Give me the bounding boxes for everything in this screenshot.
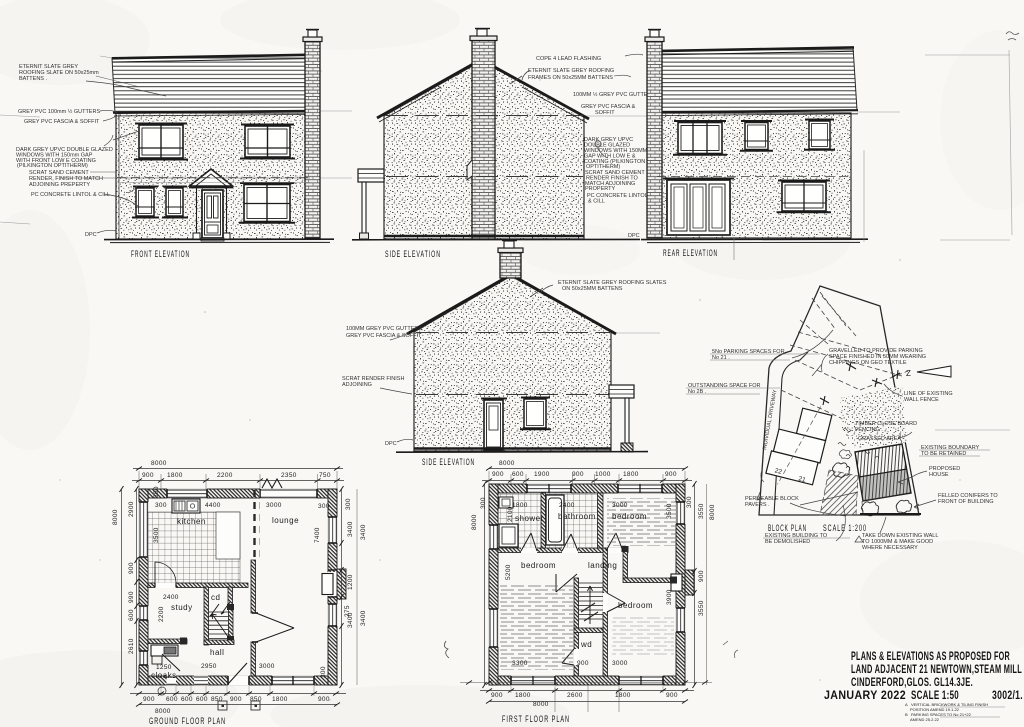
svg-text:300: 300 — [480, 497, 487, 509]
svg-text:300: 300 — [318, 503, 330, 510]
svg-text:DPC: DPC — [85, 232, 97, 238]
svg-text:LAND ADJACENT 21 NEWTOWN,STEAM: LAND ADJACENT 21 NEWTOWN,STEAM MILL — [851, 664, 1022, 676]
svg-text:2100: 2100 — [507, 506, 514, 522]
svg-text:cd: cd — [211, 593, 220, 602]
svg-text:kitchen: kitchen — [177, 517, 206, 526]
svg-text:GREY PVC FASCIA & SOFFIT: GREY PVC FASCIA & SOFFIT — [24, 119, 100, 125]
svg-text:3900: 3900 — [666, 589, 673, 605]
svg-text:900: 900 — [698, 570, 705, 582]
svg-text:600: 600 — [128, 609, 135, 621]
svg-text:3500: 3500 — [153, 527, 160, 543]
svg-text:2400: 2400 — [559, 502, 575, 509]
svg-text:ETERNIT SLATE GREY ROOFING: ETERNIT SLATE GREY ROOFING — [528, 68, 614, 74]
svg-text:ADJOINING PREPERTY: ADJOINING PREPERTY — [29, 182, 90, 188]
svg-text:300: 300 — [153, 486, 160, 498]
svg-text:850: 850 — [211, 696, 223, 703]
svg-text:1800: 1800 — [272, 696, 288, 703]
svg-text:1250: 1250 — [156, 664, 172, 671]
svg-text:JANUARY 2022: JANUARY 2022 — [824, 690, 906, 702]
svg-text:900: 900 — [142, 472, 154, 479]
svg-text:wd: wd — [580, 640, 592, 649]
svg-text:3400: 3400 — [347, 521, 354, 537]
svg-text:1900: 1900 — [534, 471, 550, 478]
svg-text:BE DEMOLISHED: BE DEMOLISHED — [765, 539, 810, 545]
svg-text:2600: 2600 — [567, 692, 583, 699]
svg-text:2350: 2350 — [281, 472, 297, 479]
svg-text:600: 600 — [166, 696, 178, 703]
svg-text:WALL FENCE: WALL FENCE — [904, 397, 939, 403]
svg-text:COPE 4 LEAD FLASHING: COPE 4 LEAD FLASHING — [536, 56, 601, 62]
svg-text:HOUSE: HOUSE — [929, 472, 949, 478]
svg-text:bathroom: bathroom — [558, 512, 596, 521]
svg-text:PAVERS .: PAVERS . — [745, 502, 770, 508]
svg-text:900: 900 — [143, 696, 155, 703]
svg-text:900: 900 — [666, 692, 678, 699]
svg-text:900: 900 — [577, 660, 589, 667]
svg-text:3000: 3000 — [612, 502, 628, 509]
svg-text:3550: 3550 — [698, 503, 705, 519]
svg-text:300: 300 — [686, 496, 693, 508]
svg-text:3000: 3000 — [266, 502, 282, 509]
svg-text:3002/1.: 3002/1. — [992, 690, 1023, 702]
svg-text:3400: 3400 — [347, 612, 354, 628]
svg-text:2400: 2400 — [163, 594, 179, 601]
svg-text:FIRST FLOOR PLAN: FIRST FLOOR PLAN — [502, 714, 570, 724]
svg-text:bedroom: bedroom — [612, 512, 647, 521]
svg-text:GROUND FLOOR PLAN: GROUND FLOOR PLAN — [149, 716, 226, 726]
svg-text:8000: 8000 — [709, 504, 716, 520]
svg-text:landing: landing — [588, 561, 617, 570]
svg-text:PROPERTY: PROPERTY — [585, 186, 615, 192]
svg-text:300: 300 — [345, 498, 352, 510]
svg-text:CHIPPINGS ON GEO TEXTILE: CHIPPINGS ON GEO TEXTILE — [829, 360, 907, 366]
svg-text:2950: 2950 — [201, 663, 217, 670]
svg-text:BATTENS .: BATTENS . — [19, 76, 47, 82]
svg-text:900: 900 — [665, 471, 677, 478]
svg-text:3300: 3300 — [512, 660, 528, 667]
svg-text:GREY PVC FASCIA & SOFFIT: GREY PVC FASCIA & SOFFIT — [346, 333, 422, 339]
svg-text:ON 50x25MM BATTENS: ON 50x25MM BATTENS — [562, 286, 623, 292]
svg-text:hall: hall — [210, 648, 224, 657]
svg-text:3000: 3000 — [259, 663, 275, 670]
svg-text:(PILKINGTON OPTITHERM): (PILKINGTON OPTITHERM) — [17, 163, 88, 169]
svg-text:bedroom: bedroom — [618, 601, 653, 610]
svg-text:FRAMES ON 50x25MM BATTENS: FRAMES ON 50x25MM BATTENS — [528, 75, 613, 81]
svg-text:GREY PVC 100mm ½ GUTTERS: GREY PVC 100mm ½ GUTTERS — [18, 108, 100, 115]
svg-text:FRONT OF BUILDING: FRONT OF BUILDING — [938, 499, 994, 505]
svg-text:100MM GREY PVC GUTTERS: 100MM GREY PVC GUTTERS — [346, 326, 422, 332]
svg-text:2200: 2200 — [217, 472, 233, 479]
svg-text:3400: 3400 — [360, 610, 367, 626]
svg-text:300: 300 — [155, 502, 167, 509]
svg-text:BLOCK PLAN: BLOCK PLAN — [768, 523, 807, 533]
svg-text:8000: 8000 — [533, 701, 549, 708]
svg-text:bedroom: bedroom — [521, 561, 556, 570]
svg-text:1200: 1200 — [347, 574, 354, 590]
svg-text:Z: Z — [906, 369, 911, 378]
svg-text:100MM ½ GREY PVC GUTTER: 100MM ½ GREY PVC GUTTER — [573, 91, 651, 98]
svg-text:600: 600 — [196, 696, 208, 703]
svg-text:600: 600 — [181, 696, 193, 703]
svg-text:SCALE 1:50: SCALE 1:50 — [911, 690, 959, 702]
svg-text:900: 900 — [318, 696, 330, 703]
svg-text:study: study — [171, 603, 193, 612]
svg-text:900: 900 — [230, 696, 242, 703]
svg-text:REAR ELEVATION: REAR ELEVATION — [663, 248, 718, 258]
svg-text:8000: 8000 — [471, 514, 478, 530]
svg-text:DPC: DPC — [628, 233, 640, 239]
svg-text:1000: 1000 — [595, 471, 611, 478]
svg-text:900: 900 — [128, 562, 135, 574]
svg-text:CINDERFORD,GLOS. GL14.3JE.: CINDERFORD,GLOS. GL14.3JE. — [851, 677, 973, 689]
svg-text:cloaks: cloaks — [151, 671, 177, 680]
svg-text:1800: 1800 — [615, 692, 631, 699]
svg-text:3550: 3550 — [698, 600, 705, 616]
svg-text:990: 990 — [128, 591, 135, 603]
svg-text:600: 600 — [512, 471, 524, 478]
svg-text:& CILL: & CILL — [588, 199, 605, 205]
svg-text:2200: 2200 — [158, 606, 165, 622]
svg-text:PLANS & ELEVATIONS AS PROPOSED: PLANS & ELEVATIONS AS PROPOSED FOR — [851, 651, 1010, 663]
svg-text:FRONT ELEVATION: FRONT ELEVATION — [131, 249, 190, 259]
svg-text:1800: 1800 — [167, 472, 183, 479]
svg-text:8000: 8000 — [155, 708, 171, 715]
svg-text:900: 900 — [492, 471, 504, 478]
svg-text:GRASSED AREA: GRASSED AREA — [858, 436, 901, 442]
svg-text:SIDE ELEVATION: SIDE ELEVATION — [385, 249, 441, 259]
svg-text:8000: 8000 — [112, 509, 119, 525]
svg-text:1800: 1800 — [512, 502, 528, 509]
svg-text:SOFFIT: SOFFIT — [595, 110, 615, 116]
svg-text:3400: 3400 — [360, 524, 367, 540]
svg-text:FENCING .: FENCING . — [855, 427, 883, 433]
svg-text:ADJOINING: ADJOINING — [342, 382, 372, 388]
svg-text:7400: 7400 — [314, 527, 321, 543]
svg-text:8000: 8000 — [151, 460, 167, 467]
svg-text:2610: 2610 — [128, 638, 135, 654]
svg-text:750: 750 — [319, 472, 331, 479]
svg-text:WHERE NECESSARY: WHERE NECESSARY — [862, 545, 918, 551]
svg-text:5200: 5200 — [505, 564, 512, 580]
svg-text:shower: shower — [515, 514, 544, 523]
svg-text:8000: 8000 — [499, 460, 515, 467]
svg-text:300: 300 — [320, 666, 327, 678]
svg-text:900: 900 — [572, 471, 584, 478]
svg-text:2900: 2900 — [128, 501, 135, 517]
svg-text:1800: 1800 — [515, 692, 531, 699]
svg-text:900: 900 — [491, 692, 503, 699]
svg-text:lounge: lounge — [272, 516, 299, 525]
svg-text:4400: 4400 — [205, 502, 221, 509]
svg-text:PC CONCRETE LINTOL & CILL: PC CONCRETE LINTOL & CILL — [31, 192, 110, 198]
svg-text:3000: 3000 — [612, 660, 628, 667]
svg-text:AMEND 25.2.22: AMEND 25.2.22 — [910, 717, 940, 722]
svg-text:SIDE ELEVATION: SIDE ELEVATION — [422, 457, 475, 467]
svg-text:1800: 1800 — [623, 471, 639, 478]
svg-text:DPC: DPC — [385, 441, 397, 447]
svg-text:3500: 3500 — [666, 503, 673, 519]
